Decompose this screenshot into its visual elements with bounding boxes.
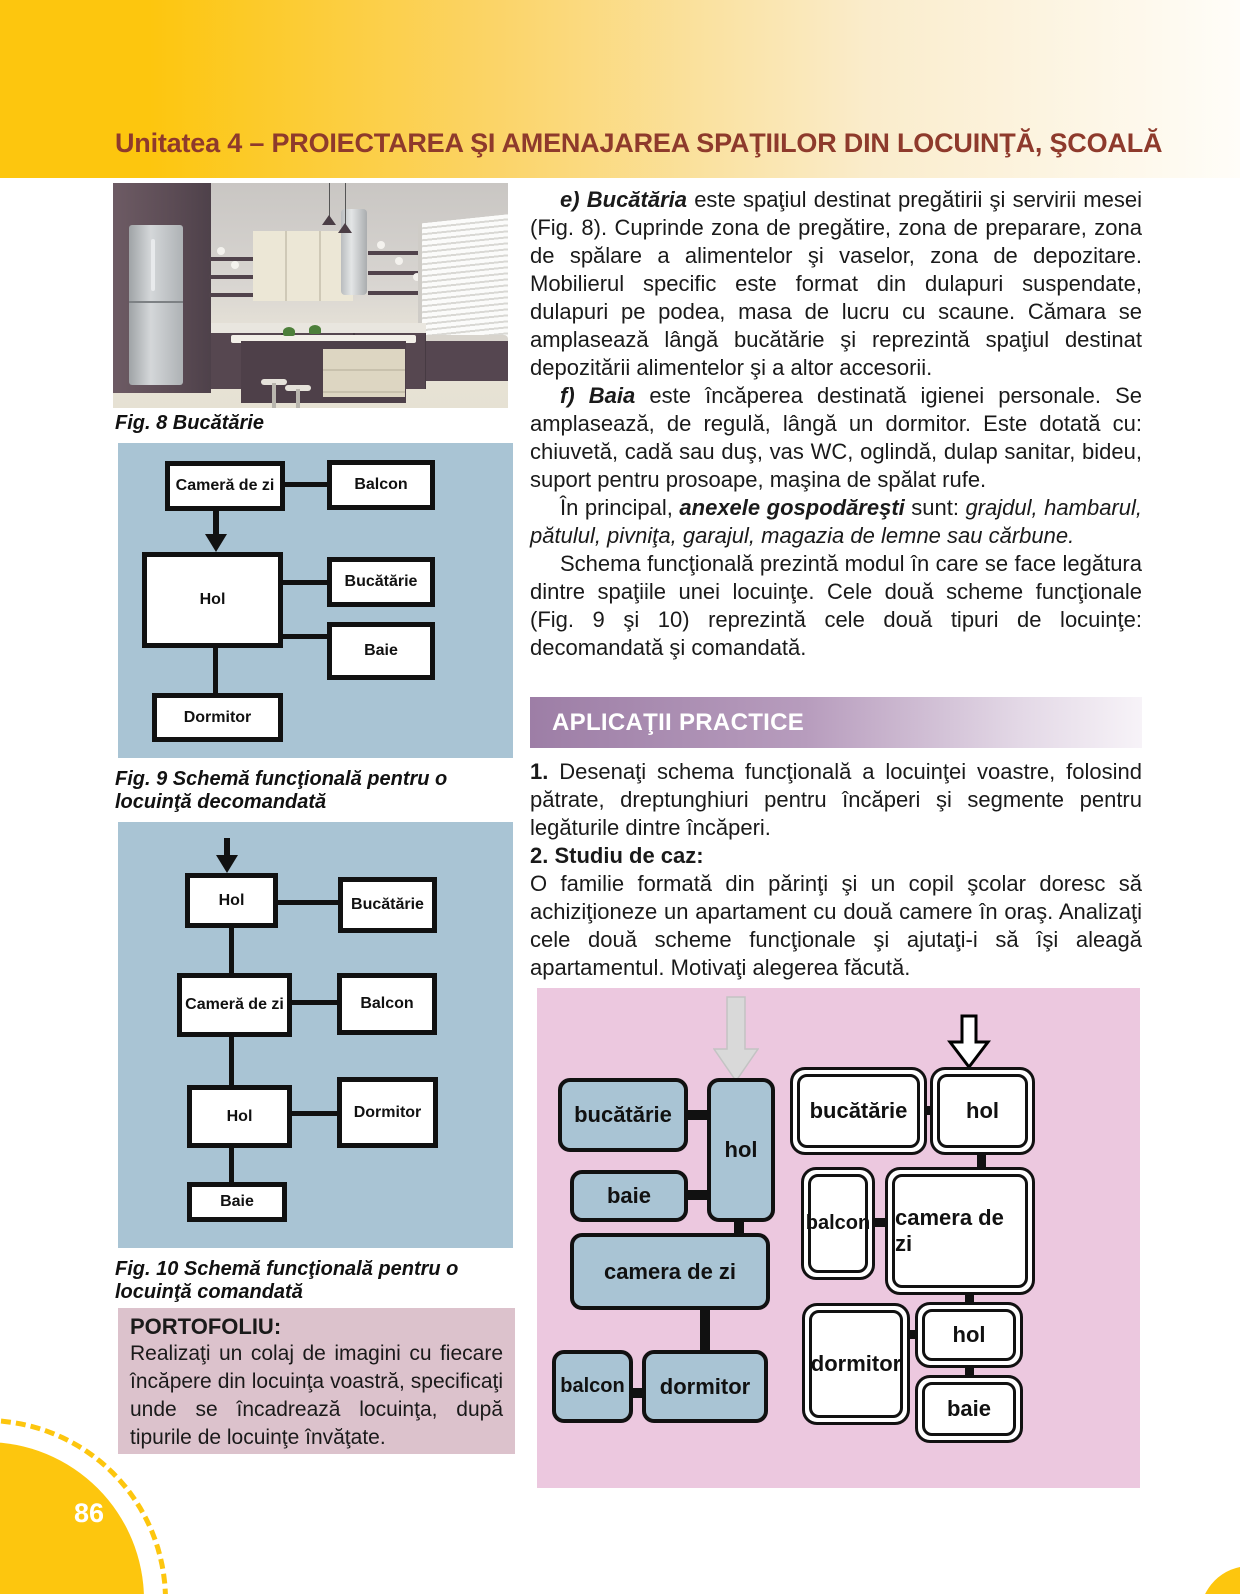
textbook-page: Unitatea 4 – PROIECTAREA ŞI AMENAJAREA S…	[0, 0, 1240, 1594]
scheme1-box-balcon: balcon	[552, 1350, 633, 1423]
scheme1-box-baie: baie	[570, 1170, 688, 1222]
fig10-box-camera-de-zi: Cameră de zi	[177, 973, 292, 1037]
connector-line	[700, 1306, 710, 1354]
kitchen-pendant-wire	[345, 183, 346, 225]
task-2-heading: 2. Studiu de caz:	[530, 842, 1142, 870]
task-number: 1.	[530, 759, 548, 784]
connector-line	[213, 643, 218, 698]
paragraph-bucataria: e) Bucătăria este spaţiul destinat pregă…	[530, 186, 1142, 382]
fig9-box-hol: Hol	[142, 552, 283, 648]
arrow-down-icon	[204, 507, 228, 558]
task-2-text: O familie formată din părinţi şi un copi…	[530, 870, 1142, 982]
kitchen-plant	[309, 325, 321, 334]
kitchen-fridge-handle	[151, 239, 155, 291]
box-label: Balcon	[354, 476, 407, 494]
connector-line	[278, 482, 334, 487]
scheme2-box-hol-1: hol	[930, 1067, 1035, 1155]
kitchen-fridge-line	[129, 301, 183, 303]
fig9-box-camera-de-zi: Cameră de zi	[165, 461, 285, 511]
box-label: bucătărie	[574, 1102, 672, 1128]
paragraph-baia: f) Baia este încăperea destinată igienei…	[530, 382, 1142, 494]
connector-line	[288, 1000, 342, 1005]
box-label: Bucătărie	[351, 896, 424, 914]
box-label: camera de zi	[895, 1205, 1025, 1257]
kitchen-shelves-left	[209, 243, 253, 299]
arrow-down-white-icon	[947, 1014, 991, 1075]
box-label: Dormitor	[354, 1104, 422, 1122]
fig9-box-balcon: Balcon	[327, 460, 435, 510]
kitchen-dish	[377, 241, 385, 249]
paragraph-schema: Schema funcţională prezintă modul în car…	[530, 550, 1142, 662]
page-number: 86	[74, 1498, 104, 1529]
kitchen-stool-leg	[272, 383, 276, 408]
tasks-block: 1. Desenaţi schema funcţională a locuinţ…	[530, 758, 1142, 982]
paragraph-lead: e) Bucătăria	[560, 187, 687, 212]
aplicatii-practice-banner: APLICAŢII PRACTICE	[530, 697, 1142, 748]
fig9-box-baie: Baie	[327, 622, 435, 680]
fig9-caption: Fig. 9 Schemă funcţională pentru o locui…	[115, 768, 505, 814]
kitchen-bench	[413, 341, 508, 381]
box-label: camera de zi	[604, 1259, 736, 1285]
connector-line	[229, 928, 234, 974]
box-label: Balcon	[360, 995, 413, 1013]
box-label: Hol	[219, 892, 245, 910]
scheme2-box-camera-de-zi: camera de zi	[885, 1167, 1035, 1295]
box-label: baie	[947, 1396, 991, 1422]
aplicatii-practice-title: APLICAŢII PRACTICE	[530, 709, 804, 737]
box-label: bucătărie	[810, 1098, 908, 1124]
scheme2-box-dormitor: dormitor	[802, 1303, 910, 1425]
fig10-box-balcon: Balcon	[337, 973, 437, 1035]
box-label: Hol	[200, 591, 226, 609]
fig9-diagram: Cameră de zi Balcon Hol Bucătărie Baie D…	[118, 443, 513, 758]
fig10-box-bucatarie: Bucătărie	[338, 877, 437, 933]
fig10-box-baie: Baie	[187, 1182, 287, 1222]
scheme1-box-camera-de-zi: camera de zi	[570, 1233, 770, 1310]
box-label: Baie	[364, 642, 398, 660]
connector-line	[229, 1036, 234, 1086]
box-label: dormitor	[811, 1351, 901, 1377]
box-label: balcon	[806, 1212, 870, 1235]
paragraph-text: În principal,	[560, 495, 679, 520]
kitchen-pendant-lamp	[322, 215, 336, 225]
paragraph-text: este spaţiul destinat pregătirii şi serv…	[530, 187, 1142, 380]
fig9-box-dormitor: Dormitor	[152, 693, 283, 742]
kitchen-stool-leg	[296, 389, 300, 408]
box-label: Bucătărie	[345, 573, 418, 591]
box-label: Cameră de zi	[176, 477, 275, 495]
scheme2-box-hol-2: hol	[915, 1302, 1023, 1368]
portofoliu-title: PORTOFOLIU:	[130, 1314, 503, 1340]
kitchen-photo	[113, 183, 508, 408]
task-1: 1. Desenaţi schema funcţională a locuinţ…	[530, 758, 1142, 842]
connector-line	[288, 1111, 342, 1116]
scheme1-box-dormitor: dormitor	[642, 1350, 768, 1423]
portofoliu-box: PORTOFOLIU: Realizaţi un colaj de imagin…	[118, 1308, 515, 1454]
paragraph-lead: f) Baia	[560, 383, 635, 408]
kitchen-dish	[231, 261, 239, 269]
paragraph-text: sunt:	[905, 495, 966, 520]
box-label: hol	[725, 1137, 758, 1163]
scheme1-box-bucatarie: bucătărie	[558, 1078, 688, 1152]
scheme2-box-bucatarie: bucătărie	[790, 1067, 927, 1155]
scheme2-box-balcon: balcon	[801, 1167, 875, 1280]
fig10-box-hol-1: Hol	[185, 873, 278, 928]
paragraph-anexe: În principal, anexele gospodăreşti sunt:…	[530, 494, 1142, 550]
box-label: dormitor	[660, 1374, 750, 1400]
box-label: Dormitor	[184, 709, 252, 727]
portofoliu-text: Realizaţi un colaj de imagini cu fiecare…	[130, 1340, 503, 1452]
scheme1-box-hol: hol	[707, 1078, 775, 1222]
fig10-diagram: Hol Bucătărie Cameră de zi Balcon Hol Do…	[118, 822, 513, 1248]
fig10-caption: Fig. 10 Schemă funcţională pentru o locu…	[115, 1258, 505, 1304]
connector-line	[273, 900, 343, 905]
arrow-down-gray-icon	[713, 996, 759, 1087]
body-text: e) Bucătăria este spaţiul destinat pregă…	[530, 186, 1142, 662]
kitchen-window-blinds	[418, 214, 508, 353]
connector-line	[229, 1147, 234, 1183]
apartment-schemes-diagram: bucătărie hol baie camera de zi balcon d…	[537, 988, 1140, 1488]
connector-line	[278, 634, 334, 639]
box-label: hol	[953, 1322, 986, 1348]
fig8-caption: Fig. 8 Bucătărie	[115, 412, 505, 435]
box-label: balcon	[560, 1375, 624, 1398]
kitchen-pendant-wire	[329, 183, 330, 217]
paragraph-text: Schema funcţională prezintă modul în car…	[530, 551, 1142, 660]
kitchen-dish	[217, 247, 225, 255]
task-text: Desenaţi schema funcţională a locuinţei …	[530, 759, 1142, 840]
fig10-box-dormitor: Dormitor	[337, 1077, 438, 1148]
fig10-box-hol-2: Hol	[187, 1085, 292, 1148]
corner-circle-bottom-right	[1200, 1566, 1240, 1594]
paragraph-emphasis: anexele gospodăreşti	[679, 495, 904, 520]
kitchen-island-front	[323, 349, 405, 397]
kitchen-fridge	[129, 225, 183, 385]
box-label: Hol	[227, 1108, 253, 1126]
box-label: baie	[607, 1183, 651, 1209]
kitchen-upper-cabinets	[253, 231, 353, 301]
box-label: Cameră de zi	[185, 996, 284, 1014]
fig9-box-bucatarie: Bucătărie	[327, 557, 435, 607]
kitchen-plant	[283, 327, 295, 336]
connector-line	[278, 580, 334, 585]
box-label: Baie	[220, 1193, 254, 1211]
page-title: Unitatea 4 – PROIECTAREA ŞI AMENAJAREA S…	[115, 128, 1195, 159]
box-label: hol	[966, 1098, 999, 1124]
scheme2-box-baie: baie	[915, 1375, 1023, 1443]
kitchen-dish	[395, 257, 403, 265]
